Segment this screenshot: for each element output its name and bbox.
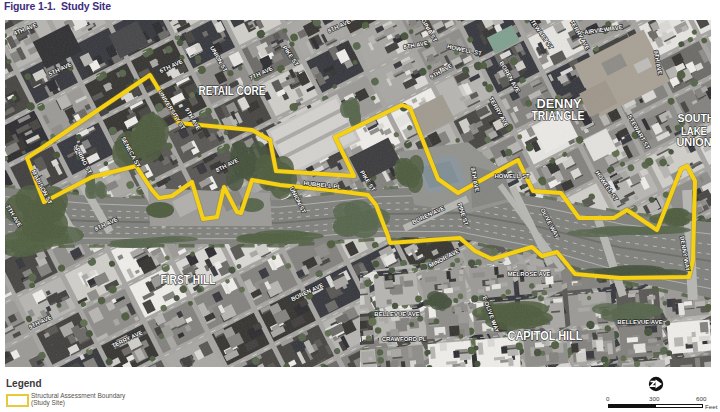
svg-text:UNION: UNION: [677, 136, 712, 148]
svg-text:TRIANGLE: TRIANGLE: [532, 109, 585, 123]
svg-text:FIRST HILL: FIRST HILL: [161, 273, 216, 287]
svg-text:BELLEVUE AVE: BELLEVUE AVE: [617, 319, 662, 325]
svg-text:CAPITOL HILL: CAPITOL HILL: [508, 329, 583, 343]
svg-text:BELLEVUE AVE: BELLEVUE AVE: [374, 311, 419, 317]
svg-text:SOUTH: SOUTH: [678, 112, 712, 124]
svg-text:HOWELL ST: HOWELL ST: [494, 173, 530, 179]
svg-text:RETAIL CORE: RETAIL CORE: [199, 84, 266, 98]
svg-text:CRAWFORD PL: CRAWFORD PL: [382, 336, 427, 342]
svg-text:MELROSE AVE: MELROSE AVE: [507, 271, 550, 277]
svg-text:LAKE: LAKE: [681, 125, 707, 137]
